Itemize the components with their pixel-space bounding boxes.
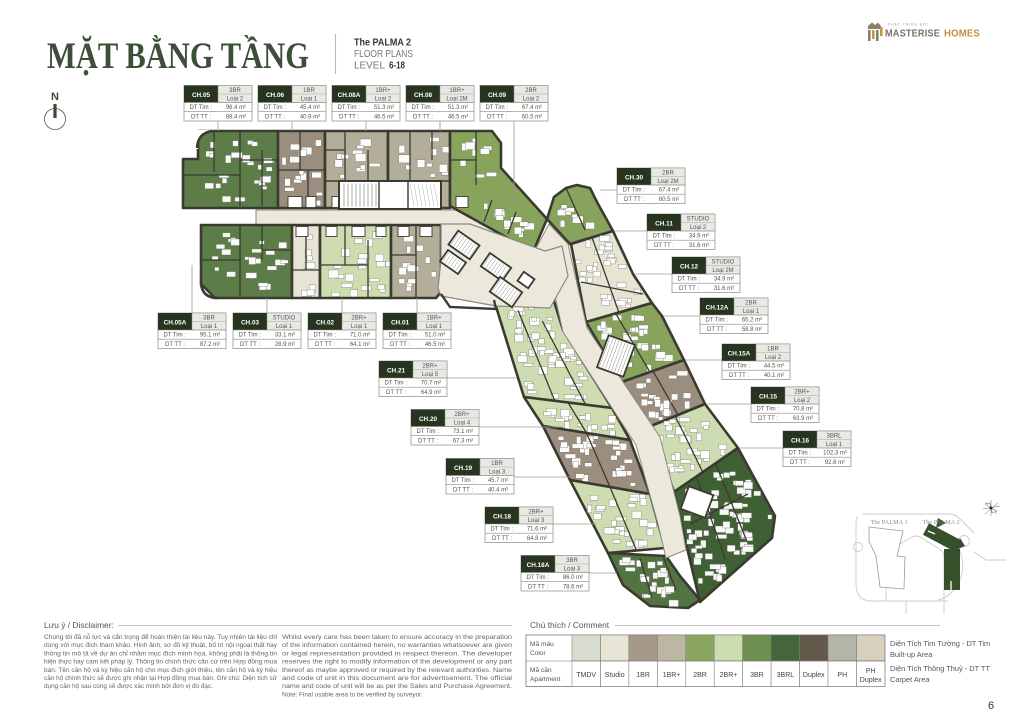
svg-text:2BR+: 2BR+ xyxy=(351,316,367,322)
svg-text:60.5 m²: 60.5 m² xyxy=(659,197,679,203)
svg-text:2BR+: 2BR+ xyxy=(794,390,810,396)
svg-text:DT TT :: DT TT : xyxy=(386,390,406,396)
svg-text:DT TT :: DT TT : xyxy=(492,536,512,542)
svg-text:DT Tim :: DT Tim : xyxy=(622,188,645,194)
svg-text:DT TT :: DT TT : xyxy=(729,373,749,379)
svg-text:51.0 m²: 51.0 m² xyxy=(425,333,445,339)
svg-text:Loại 2: Loại 2 xyxy=(690,225,707,231)
svg-text:CH.08A: CH.08A xyxy=(338,92,361,99)
svg-text:CH.08: CH.08 xyxy=(414,92,433,99)
svg-text:PH: PH xyxy=(866,668,876,675)
svg-text:DT Tim :: DT Tim : xyxy=(677,277,700,283)
svg-text:CH.01: CH.01 xyxy=(391,319,410,326)
svg-text:CH.12A: CH.12A xyxy=(706,304,729,311)
svg-text:N: N xyxy=(51,91,59,103)
svg-text:6: 6 xyxy=(988,700,994,712)
svg-text:DT TT :: DT TT : xyxy=(790,460,810,466)
svg-text:2BR: 2BR xyxy=(693,672,707,679)
svg-text:PHÁT TRIỂN BỞI: PHÁT TRIỂN BỞI xyxy=(888,22,929,27)
svg-text:60.5 m²: 60.5 m² xyxy=(522,114,542,120)
svg-text:MẶT BẰNG TẦNG: MẶT BẰNG TẦNG xyxy=(47,34,309,77)
svg-text:1BR+: 1BR+ xyxy=(426,316,442,322)
svg-text:STUDIO: STUDIO xyxy=(687,217,710,223)
svg-text:Loại 2: Loại 2 xyxy=(523,97,540,103)
svg-text:hiện thực hay cam kết pháp lý.: hiện thực hay cam kết pháp lý. Thông tin… xyxy=(44,657,277,666)
svg-text:DT Tim :: DT Tim : xyxy=(788,451,811,457)
svg-text:Duplex: Duplex xyxy=(860,677,882,684)
svg-text:2BR: 2BR xyxy=(745,301,757,307)
svg-text:DT Tim :: DT Tim : xyxy=(490,527,513,533)
svg-text:Studio: Studio xyxy=(605,672,625,679)
svg-text:67.3 m²: 67.3 m² xyxy=(453,438,473,444)
svg-text:TMDV: TMDV xyxy=(576,672,596,679)
svg-text:Loại 4: Loại 4 xyxy=(454,421,471,427)
svg-text:71.6 m²: 71.6 m² xyxy=(527,527,547,533)
svg-text:CH.11: CH.11 xyxy=(655,220,673,227)
svg-text:Duplex: Duplex xyxy=(803,672,825,679)
svg-text:CH.16: CH.16 xyxy=(791,437,810,444)
svg-text:DT TT :: DT TT : xyxy=(240,342,260,348)
svg-text:58.8 m²: 58.8 m² xyxy=(742,327,762,333)
svg-text:DT Tim :: DT Tim : xyxy=(727,364,750,370)
svg-text:of the information contained h: of the information contained herein, no … xyxy=(282,642,513,649)
svg-text:31.6 m²: 31.6 m² xyxy=(689,243,709,249)
svg-text:DT Tim :: DT Tim : xyxy=(526,575,549,581)
svg-text:The PALMA 2: The PALMA 2 xyxy=(922,519,959,526)
svg-text:MASTERISE: MASTERISE xyxy=(885,29,940,40)
svg-text:DT Tim :: DT Tim : xyxy=(705,318,728,324)
svg-text:Loại 1: Loại 1 xyxy=(276,324,293,330)
svg-text:Note: Final usable area to be: Note: Final usable area to be verified b… xyxy=(282,691,423,698)
svg-text:DT Tim :: DT Tim : xyxy=(485,105,508,111)
svg-text:CH.03: CH.03 xyxy=(241,319,260,326)
svg-text:DT TT :: DT TT : xyxy=(339,114,359,120)
svg-text:DT Tim :: DT Tim : xyxy=(652,234,675,240)
svg-text:64.1 m²: 64.1 m² xyxy=(350,342,370,348)
svg-text:6-18: 6-18 xyxy=(389,61,405,72)
svg-text:DT TT :: DT TT : xyxy=(679,286,699,292)
svg-text:Loại 3: Loại 3 xyxy=(489,470,506,476)
svg-text:CH.18A: CH.18A xyxy=(527,562,550,569)
svg-text:CH.21: CH.21 xyxy=(387,367,406,374)
svg-text:CH.05: CH.05 xyxy=(192,92,211,99)
svg-text:Loại 2: Loại 2 xyxy=(375,97,392,103)
svg-text:1BR+: 1BR+ xyxy=(663,672,681,679)
svg-text:Mã căn: Mã căn xyxy=(530,667,552,674)
svg-text:Apartment: Apartment xyxy=(530,676,561,683)
svg-text:DT Tim :: DT Tim : xyxy=(189,105,212,111)
svg-text:HOMES: HOMES xyxy=(944,29,980,40)
svg-text:45.7 m²: 45.7 m² xyxy=(488,478,508,484)
svg-text:3BR: 3BR xyxy=(203,316,215,322)
svg-text:Color: Color xyxy=(530,650,547,657)
svg-text:thereof as maybe approved or r: thereof as maybe approved or required by… xyxy=(282,667,512,674)
svg-text:DT Tim :: DT Tim : xyxy=(263,105,286,111)
svg-text:CH.05A: CH.05A xyxy=(164,319,187,326)
svg-text:2BR+: 2BR+ xyxy=(720,672,738,679)
svg-text:thông tin mô tả về dự án chỉ n: thông tin mô tả về dự án chỉ nhằm mục đí… xyxy=(44,648,277,657)
svg-text:34.9 m²: 34.9 m² xyxy=(714,277,734,283)
svg-text:or legal representation provid: or legal representation provided in resp… xyxy=(282,650,513,657)
svg-text:CH.12: CH.12 xyxy=(680,263,699,270)
svg-text:73.1 m²: 73.1 m² xyxy=(453,429,473,435)
svg-text:DT TT :: DT TT : xyxy=(624,197,644,203)
svg-text:Chúng tôi đã nỗ lực và cẩn trọ: Chúng tôi đã nỗ lực và cẩn trọng để hoàn… xyxy=(44,632,278,641)
svg-text:DT TT :: DT TT : xyxy=(315,342,335,348)
svg-text:DT TT :: DT TT : xyxy=(528,584,548,590)
svg-text:CH.19: CH.19 xyxy=(454,465,473,472)
svg-text:96.4 m²: 96.4 m² xyxy=(226,105,246,111)
svg-text:STUDIO: STUDIO xyxy=(712,260,735,266)
svg-text:CH.30: CH.30 xyxy=(625,174,644,181)
svg-text:LEVEL: LEVEL xyxy=(354,61,386,72)
svg-text:Chú thích / Comment: Chú thích / Comment xyxy=(530,620,610,630)
svg-text:DT TT :: DT TT : xyxy=(265,114,285,120)
svg-text:PH: PH xyxy=(837,672,847,679)
svg-text:Loại 1: Loại 1 xyxy=(826,442,843,448)
svg-text:1BR+: 1BR+ xyxy=(449,88,465,94)
svg-text:65.2 m²: 65.2 m² xyxy=(742,318,762,324)
svg-text:dụng căn hộ sau cùng sẽ được x: dụng căn hộ sau cùng sẽ được xác minh bở… xyxy=(44,682,213,690)
svg-text:DT TT :: DT TT : xyxy=(390,342,410,348)
svg-text:DT Tim :: DT Tim : xyxy=(756,407,779,413)
svg-text:The PALMA 2: The PALMA 2 xyxy=(354,38,411,49)
svg-text:78.6 m²: 78.6 m² xyxy=(563,584,583,590)
svg-text:name and code of unit will be: name and code of unit will be as per the… xyxy=(282,683,512,690)
svg-text:Loại 2M: Loại 2M xyxy=(446,97,467,103)
svg-text:DT TT :: DT TT : xyxy=(191,114,211,120)
svg-text:CH.09: CH.09 xyxy=(488,92,507,99)
svg-text:Loại 1: Loại 1 xyxy=(426,324,443,330)
svg-text:STUDIO: STUDIO xyxy=(273,316,296,322)
svg-text:DT TT :: DT TT : xyxy=(413,114,433,120)
svg-text:căn hộ chính thức sẽ được ghi: căn hộ chính thức sẽ được ghi nhận tại H… xyxy=(44,673,278,682)
svg-text:Mã màu: Mã màu xyxy=(530,641,554,648)
svg-text:DT TT :: DT TT : xyxy=(418,438,438,444)
svg-text:2BR+: 2BR+ xyxy=(422,364,438,370)
svg-text:1BR: 1BR xyxy=(303,88,315,94)
svg-text:67.4 m²: 67.4 m² xyxy=(522,105,542,111)
svg-text:DT TT :: DT TT : xyxy=(707,327,727,333)
svg-text:86.0 m²: 86.0 m² xyxy=(563,575,583,581)
svg-text:Whilst every care has been tak: Whilst every care has been taken to ensu… xyxy=(282,634,512,641)
svg-text:70.8 m²: 70.8 m² xyxy=(793,407,813,413)
svg-text:DT Tim :: DT Tim : xyxy=(416,429,439,435)
svg-text:1BR+: 1BR+ xyxy=(375,88,391,94)
svg-text:Loại 5: Loại 5 xyxy=(422,372,439,378)
svg-text:CH.20: CH.20 xyxy=(419,416,438,423)
svg-text:Loại 1: Loại 1 xyxy=(351,324,368,330)
svg-text:DT TT :: DT TT : xyxy=(758,416,778,422)
svg-text:CH.06: CH.06 xyxy=(266,92,285,99)
svg-text:64.9 m²: 64.9 m² xyxy=(421,390,441,396)
svg-text:67.4 m²: 67.4 m² xyxy=(659,188,679,194)
svg-text:Carpet Area: Carpet Area xyxy=(890,675,930,684)
svg-text:DT Tim :: DT Tim : xyxy=(337,105,360,111)
svg-text:DT Tim :: DT Tim : xyxy=(388,333,411,339)
svg-text:CH.02: CH.02 xyxy=(316,319,335,326)
svg-text:34.9 m²: 34.9 m² xyxy=(689,234,709,240)
svg-text:63.9 m²: 63.9 m² xyxy=(793,416,813,422)
svg-text:Loại 2M: Loại 2M xyxy=(657,179,678,185)
svg-text:3BRL: 3BRL xyxy=(777,672,795,679)
svg-text:87.2 m²: 87.2 m² xyxy=(200,342,220,348)
svg-text:CH.15: CH.15 xyxy=(759,393,778,400)
svg-text:DT Tim :: DT Tim : xyxy=(238,333,261,339)
svg-text:Loại 2: Loại 2 xyxy=(227,97,244,103)
svg-text:FLOOR PLANS: FLOOR PLANS xyxy=(354,49,413,60)
svg-text:1BR: 1BR xyxy=(767,347,779,353)
svg-text:28.9 m²: 28.9 m² xyxy=(275,342,295,348)
svg-text:31.6 m²: 31.6 m² xyxy=(714,286,734,292)
svg-text:92.6 m²: 92.6 m² xyxy=(825,460,845,466)
svg-text:3BR: 3BR xyxy=(750,672,764,679)
svg-text:33.1 m²: 33.1 m² xyxy=(275,333,295,339)
svg-text:3BR: 3BR xyxy=(566,558,578,564)
svg-text:and code of unit in this docum: and code of unit in this document are fo… xyxy=(282,675,512,682)
svg-text:CH.18: CH.18 xyxy=(493,513,512,520)
svg-text:2BR: 2BR xyxy=(525,88,537,94)
svg-text:3BR: 3BR xyxy=(229,88,241,94)
svg-text:40.1 m²: 40.1 m² xyxy=(764,373,784,379)
svg-text:Loại 1: Loại 1 xyxy=(201,324,218,330)
svg-text:DT TT :: DT TT : xyxy=(165,342,185,348)
svg-text:40.9 m²: 40.9 m² xyxy=(300,114,320,120)
svg-text:71.0 m²: 71.0 m² xyxy=(350,333,370,339)
svg-text:Loại 2: Loại 2 xyxy=(794,398,811,404)
svg-text:40.4 m²: 40.4 m² xyxy=(488,487,508,493)
svg-text:46.5 m²: 46.5 m² xyxy=(425,342,445,348)
svg-text:Built-up Area: Built-up Area xyxy=(890,650,933,659)
svg-text:51.3 m²: 51.3 m² xyxy=(374,105,394,111)
svg-text:Loại 1: Loại 1 xyxy=(301,97,318,103)
svg-text:DT Tim :: DT Tim : xyxy=(451,478,474,484)
svg-text:DT TT :: DT TT : xyxy=(654,243,674,249)
svg-text:88.4 m²: 88.4 m² xyxy=(226,114,246,120)
svg-text:bán. Tên căn hộ và ký hiệu căn: bán. Tên căn hộ và ký hiệu căn hộ cho mụ… xyxy=(44,667,277,674)
svg-text:Diện Tích Tim Tường - DT Tim: Diện Tích Tim Tường - DT Tim xyxy=(890,639,990,648)
svg-text:2BR+: 2BR+ xyxy=(528,510,544,516)
svg-text:2BR: 2BR xyxy=(662,171,674,177)
svg-text:64.8 m²: 64.8 m² xyxy=(527,536,547,542)
svg-text:46.5 m²: 46.5 m² xyxy=(448,114,468,120)
svg-text:dùng với mục đích tham khảo. H: dùng với mục đích tham khảo. Hình ảnh, s… xyxy=(44,640,278,649)
svg-text:Lưu ý / Disclaimer:: Lưu ý / Disclaimer: xyxy=(44,620,114,630)
svg-text:102.3 m²: 102.3 m² xyxy=(823,451,847,457)
svg-text:Diện Tích Thông Thuỷ - DT TT: Diện Tích Thông Thuỷ - DT TT xyxy=(890,664,990,673)
svg-text:The PALMA 1: The PALMA 1 xyxy=(870,519,907,526)
svg-text:Loại 2M: Loại 2M xyxy=(712,268,733,274)
svg-text:Loại 3: Loại 3 xyxy=(528,518,545,524)
svg-text:Loại 2: Loại 2 xyxy=(765,355,782,361)
svg-text:DT Tim :: DT Tim : xyxy=(384,381,407,387)
svg-text:DT Tim :: DT Tim : xyxy=(163,333,186,339)
svg-text:95.1 m²: 95.1 m² xyxy=(200,333,220,339)
svg-text:Loại 3: Loại 3 xyxy=(564,567,581,573)
svg-text:3BRL: 3BRL xyxy=(826,434,842,440)
svg-text:reserves the right to modify i: reserves the right to modify information… xyxy=(282,659,512,666)
svg-text:51.3 m²: 51.3 m² xyxy=(448,105,468,111)
svg-text:1BR: 1BR xyxy=(636,672,650,679)
svg-text:Loại 1: Loại 1 xyxy=(743,309,760,315)
svg-text:DT TT :: DT TT : xyxy=(453,487,473,493)
svg-text:DT Tim :: DT Tim : xyxy=(313,333,336,339)
svg-text:1BR: 1BR xyxy=(491,461,503,467)
svg-text:46.5 m²: 46.5 m² xyxy=(374,114,394,120)
svg-text:44.5 m²: 44.5 m² xyxy=(764,364,784,370)
svg-text:DT TT :: DT TT : xyxy=(487,114,507,120)
svg-text:CH.15A: CH.15A xyxy=(728,350,751,357)
svg-text:70.7 m²: 70.7 m² xyxy=(421,381,441,387)
svg-text:2BR+: 2BR+ xyxy=(454,412,470,418)
svg-text:DT Tim :: DT Tim : xyxy=(411,105,434,111)
svg-text:45.4 m²: 45.4 m² xyxy=(300,105,320,111)
